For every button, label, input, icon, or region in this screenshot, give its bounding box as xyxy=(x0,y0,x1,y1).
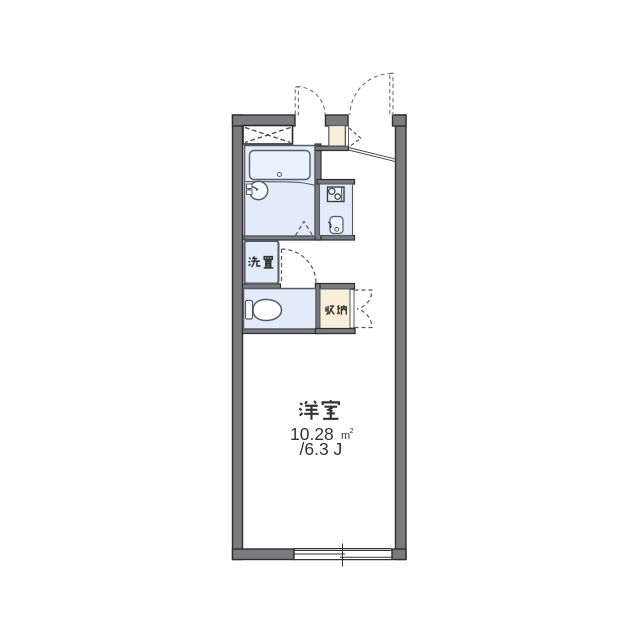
svg-text:/6.3 J: /6.3 J xyxy=(300,439,343,459)
svg-text:2: 2 xyxy=(350,426,354,435)
